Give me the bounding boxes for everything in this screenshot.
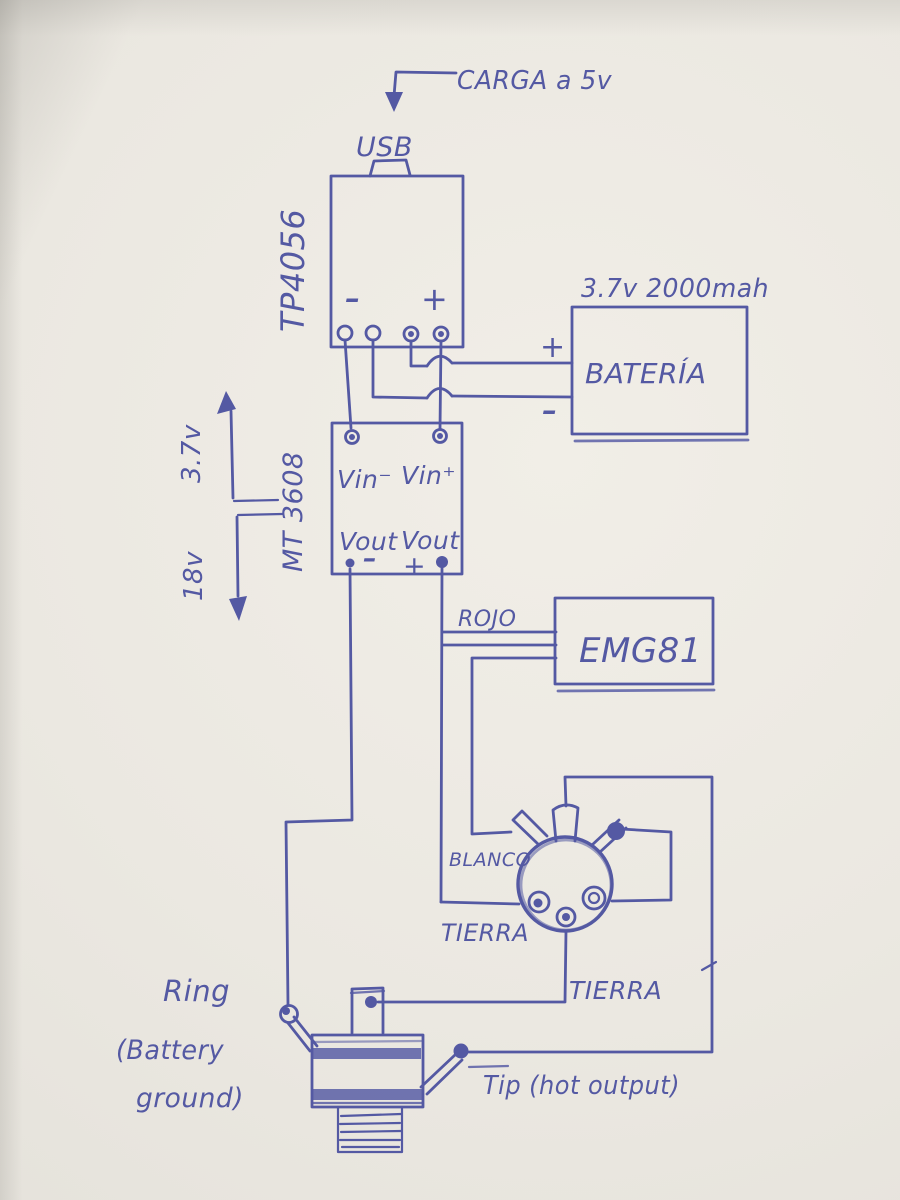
tierra-connector-label: TIERRA (441, 919, 529, 947)
break-dash (234, 500, 278, 501)
vout-plus-terminal (436, 556, 448, 568)
mt3608-label: MT 3608 (278, 451, 309, 572)
battery-minus-sign: - (541, 384, 557, 435)
jack-body-band (312, 1089, 422, 1100)
vin-plus-label: Vin⁺ (401, 461, 456, 490)
output-voltage-label: 18v (179, 551, 209, 601)
wire-ring-ground (286, 569, 352, 1005)
break-dash (238, 514, 282, 515)
charge-label: CARGA a 5v (457, 66, 612, 96)
connector-contact-right (583, 887, 605, 909)
circuit-sketch: CARGA a 5v USB TP4056 - + + - 3.7v 2000m… (0, 0, 900, 1200)
tp4056-terminals (338, 326, 448, 341)
photographed-paper-sheet: CARGA a 5v USB TP4056 - + + - 3.7v 2000m… (0, 0, 900, 1200)
emg81-doubled-edge (558, 690, 714, 691)
battery-plus-sign: + (540, 330, 566, 365)
jack-tab-terminal (365, 996, 377, 1008)
rojo-label: ROJO (458, 607, 516, 632)
terminal-out-minus (338, 326, 352, 340)
terminal-batt-minus (366, 326, 380, 340)
blanco-label: BLANCO (449, 849, 531, 871)
vout-plus-sign: + (403, 551, 426, 582)
wire-right-pin-loop (612, 829, 671, 901)
tp4056-label: TP4056 (274, 209, 312, 332)
stray-pen-tick (702, 962, 716, 970)
tip-label-overline (469, 1066, 508, 1067)
tip-label: Tip (hot output) (483, 1071, 680, 1101)
charge-input-arrow (385, 72, 456, 112)
output-jack (281, 988, 469, 1152)
jack-lug-right (421, 1054, 462, 1094)
battery-specs-label: 3.7v 2000mah (581, 274, 769, 304)
jack-top-tab (352, 988, 383, 1033)
down-arrowhead-icon (229, 596, 247, 621)
jack-ring-terminal (281, 1006, 298, 1023)
jack-tip-terminal (454, 1044, 469, 1059)
ring-label-line1: Ring (163, 974, 230, 1008)
wire-tip-loop (467, 777, 712, 1052)
tp4056-plus-sign: + (421, 280, 448, 318)
tierra-jack-label: TIERRA (569, 976, 662, 1005)
down-arrowhead-icon (385, 92, 403, 112)
battery-box-doubled-edge (575, 440, 748, 441)
ring-label-line2: (Battery (116, 1035, 224, 1066)
wire-vout-plus-run (441, 568, 442, 902)
mt3608-output-terminals (346, 556, 449, 568)
vout-minus-sign: - (362, 535, 377, 581)
emg81-label: EMG81 (579, 631, 702, 671)
tp4056-minus-sign: - (344, 272, 360, 323)
vin-minus-label: Vin⁻ (337, 465, 392, 494)
up-arrowhead-icon (217, 391, 236, 414)
mt3608-input-terminals (346, 430, 447, 444)
connector-pin-right-solder-dot (607, 822, 625, 840)
connector-pin-left (513, 811, 547, 844)
wire-blanco (472, 658, 556, 834)
wire-out-minus (345, 340, 351, 428)
voltage-annotation (217, 391, 282, 621)
ring-label-line3: ground) (136, 1083, 244, 1114)
battery-label: BATERÍA (585, 356, 707, 390)
vout-minus-terminal (346, 559, 355, 568)
jack-body-band (313, 1048, 421, 1059)
charge-wire (394, 72, 456, 96)
wire-out-plus (440, 341, 441, 429)
usb-label: USB (356, 132, 413, 163)
wire-to-connector-left-contact (441, 902, 519, 904)
input-voltage-label: 3.7v (177, 424, 207, 483)
